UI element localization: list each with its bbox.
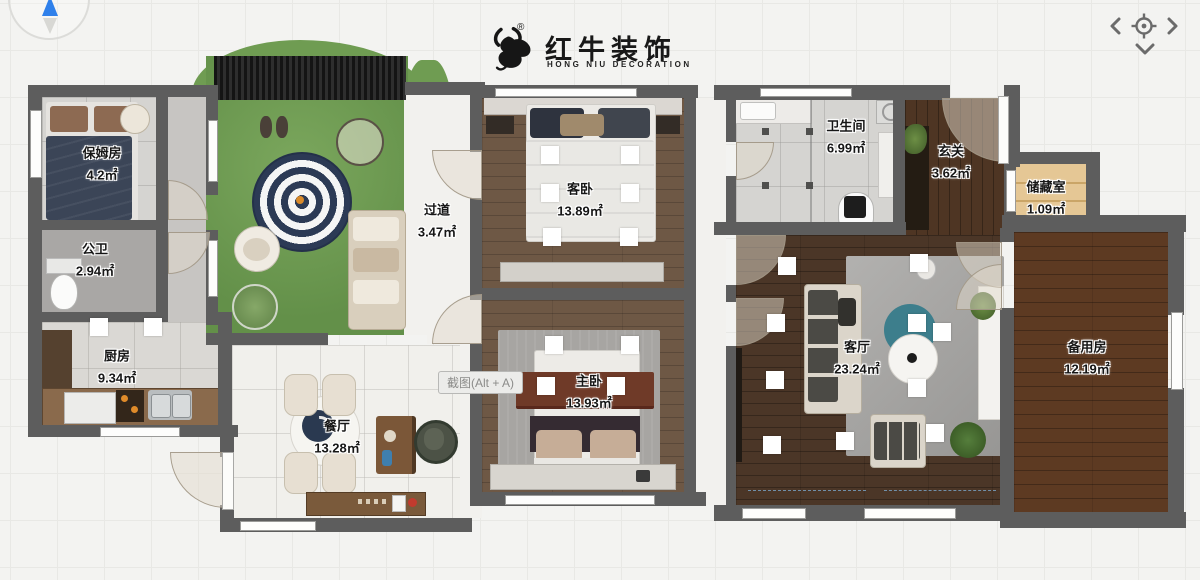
window[interactable] [240,521,316,531]
kitchen-tall-cabinet[interactable] [42,330,72,390]
marker-square[interactable] [836,432,854,450]
window[interactable] [505,495,655,505]
room-label-gongwei: 公卫2.94㎡ [76,242,114,279]
floor-drain [806,182,813,189]
wall [470,198,482,298]
floor-drain [762,128,769,135]
window[interactable] [864,508,956,519]
sofa-pillow [353,217,399,241]
wall [893,98,905,228]
dimension-line [884,490,996,491]
dining-chair[interactable] [284,452,318,494]
marker-square[interactable] [763,436,781,454]
wall [726,285,736,302]
toilet-lid [844,196,866,218]
sideboard-handles [358,499,386,504]
room-label-baomufang: 保姆房4.2㎡ [82,146,121,183]
room-label-zhuwo: 主卧13.93㎡ [566,374,612,411]
wall [218,312,232,437]
wall [156,92,168,320]
registered-trademark: ® [517,22,524,33]
marker-square[interactable] [541,146,559,164]
wall [726,346,736,508]
garden-plant[interactable] [232,284,278,330]
sink-basin [172,394,191,418]
wall [470,344,482,494]
view-pan-controls [1108,8,1188,60]
marker-square[interactable] [778,257,796,275]
desk[interactable] [376,416,416,474]
wall [1000,512,1186,528]
wall [1000,228,1014,242]
marker-square[interactable] [908,379,926,397]
sofa-small-cushions [874,422,920,460]
marker-square[interactable] [908,314,926,332]
desk-item [384,430,396,442]
room-label-weishengjian: 卫生间6.99㎡ [826,119,865,156]
marker-square[interactable] [543,228,561,246]
sofa-pillow-dark [838,298,856,326]
umbrella-pole [296,196,304,204]
chevron-down-icon[interactable] [1134,42,1156,56]
pillow [50,106,88,132]
small-chair[interactable] [120,104,150,134]
table-center-dot [907,353,917,363]
hanging-chair[interactable] [336,118,384,166]
marker-square[interactable] [766,371,784,389]
dresser-item [636,470,650,482]
dining-chair[interactable] [284,374,318,416]
dimension-line [748,490,866,491]
living-plant[interactable] [950,422,986,458]
kettle [392,495,406,512]
marker-square[interactable] [910,254,928,272]
entry-plant[interactable] [903,124,927,154]
vanity-sink [740,102,776,120]
marker-square[interactable] [767,314,785,332]
door-arc-canting[interactable] [170,452,226,508]
shower-partition [810,98,812,222]
dining-chair[interactable] [322,452,356,494]
screenshot-shortcut-tooltip: 截图(Alt + A) [438,371,523,394]
room-label-chucangshi: 储藏室1.09㎡ [1026,180,1065,217]
floor-plan-canvas[interactable]: ® 红牛装饰 HONG NIU DECORATION [0,0,1200,580]
room-label-beiyongfang: 备用房12.19㎡ [1064,340,1110,377]
window[interactable] [208,120,218,182]
wall [1002,215,1186,232]
window[interactable] [30,110,42,178]
room-label-kewo: 客卧13.89㎡ [557,182,603,219]
marker-square[interactable] [621,146,639,164]
slipper[interactable] [260,116,272,138]
marker-square[interactable] [537,377,555,395]
compass-north-arrow-icon [42,0,58,16]
floor-drain [762,182,769,189]
dining-chair[interactable] [322,374,356,416]
marker-square[interactable] [144,318,162,336]
door-leaf-canting[interactable] [222,452,234,510]
wall [726,98,736,142]
nightstand[interactable] [654,116,680,134]
marker-square[interactable] [620,228,638,246]
window[interactable] [760,88,852,97]
window[interactable] [208,240,218,297]
window[interactable] [495,88,637,97]
marker-square[interactable] [90,318,108,336]
brand-name-en: HONG NIU DECORATION [547,60,692,69]
office-chair-seat [424,428,444,450]
wall [470,288,696,300]
sofa-pillow [353,280,399,304]
window[interactable] [100,427,180,437]
brand-logo: ® 红牛装饰 HONG NIU DECORATION [490,18,720,74]
burner [131,406,138,413]
small-red-item [408,498,417,507]
pillow-tan [560,114,604,136]
floor-drain [806,128,813,135]
compass-south-needle-icon [43,18,57,34]
door-leaf-entry[interactable] [998,96,1009,164]
chair-cushion [243,238,270,261]
wall [1168,388,1184,528]
pergola[interactable] [214,56,406,100]
wall [684,98,696,504]
room-label-guodao: 过道3.47㎡ [418,203,456,240]
room-label-keting: 客厅23.24㎡ [834,340,880,377]
gas-cooktop[interactable] [116,390,144,422]
room-label-canting: 餐厅13.28㎡ [314,419,360,456]
pillow [598,108,650,138]
sink-basin [151,394,171,418]
chevron-left-icon[interactable] [1108,16,1124,36]
room-label-xuanguan: 玄关3.62㎡ [932,144,970,181]
window[interactable] [742,508,806,519]
toilet[interactable] [50,274,78,310]
sofa-pillow [353,248,399,272]
stove[interactable] [64,392,116,424]
compass[interactable] [8,0,90,40]
slipper[interactable] [276,116,288,138]
window[interactable] [1006,170,1016,212]
nightstand[interactable] [486,116,514,134]
room-label-chufang: 厨房9.34㎡ [98,349,136,386]
wall [28,220,168,230]
window[interactable] [1171,312,1183,390]
hongniu-bull-logo-icon [490,26,540,72]
wall [1168,215,1184,315]
marker-square[interactable] [621,336,639,354]
bedroom-bench[interactable] [500,262,664,282]
burner [121,395,128,402]
hall-floor-right[interactable] [696,98,726,505]
wall [714,222,906,235]
wall [1000,308,1014,518]
desk-item-blue [382,450,392,466]
marker-square[interactable] [926,424,944,442]
marker-square[interactable] [621,184,639,202]
wall [28,85,218,97]
marker-square[interactable] [933,323,951,341]
wall [470,98,482,152]
crosshair-target-icon[interactable] [1130,12,1158,40]
chevron-right-icon[interactable] [1164,16,1180,36]
marker-square[interactable] [545,336,563,354]
